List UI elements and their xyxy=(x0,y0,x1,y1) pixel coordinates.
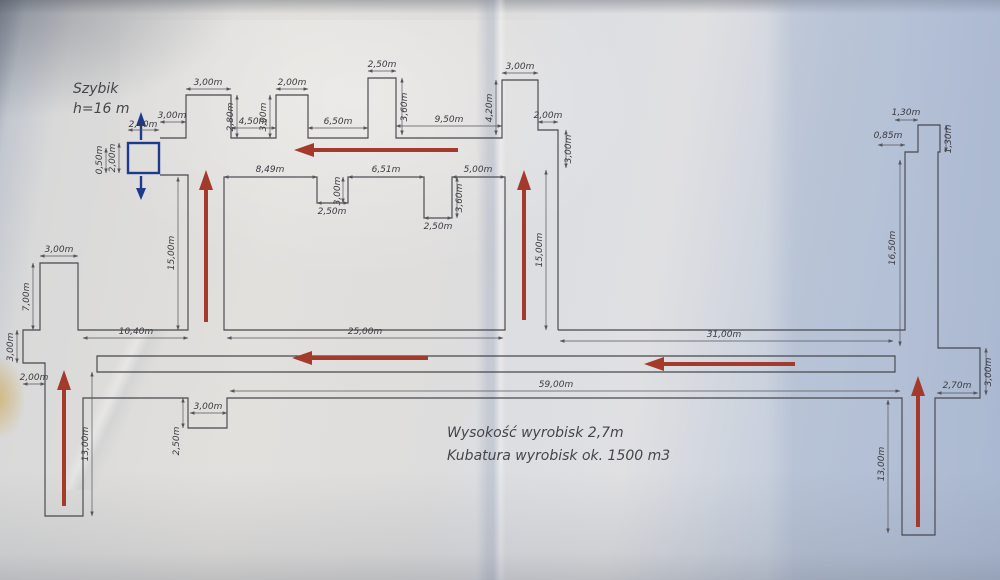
dim-label: 2,50m xyxy=(318,207,347,217)
dim-label: 3,00m xyxy=(158,111,187,121)
dim-label: 3,00m xyxy=(984,357,994,386)
flow-arrow-up-center-corridor-head xyxy=(517,170,531,190)
dim-label: 4,20m xyxy=(485,93,495,122)
dim-label: 6,50m xyxy=(324,117,353,127)
dim-label: 2,00m xyxy=(278,78,307,88)
dim-label: 3,00m xyxy=(194,402,223,412)
dim-label: 2,70m xyxy=(943,381,972,391)
dim-label: 5,00m xyxy=(464,165,493,175)
dim-label: 3,00m xyxy=(259,102,269,131)
note-volume: Kubatura wyrobisk ok. 1500 m3 xyxy=(447,448,670,464)
dim-label: 1,30m xyxy=(944,124,954,153)
dim-label: 3,00m xyxy=(333,176,343,205)
dim-label: 9,50m xyxy=(435,115,464,125)
flow-arrow-up-bottom-right-head xyxy=(911,376,925,396)
dim-label: 7,00m xyxy=(22,282,32,311)
dim-label: 16,50m xyxy=(888,231,898,266)
shaft-height-label: h=16 m xyxy=(73,101,130,117)
tunnel-network xyxy=(23,78,980,535)
dim-label: 1,30m xyxy=(892,108,921,118)
note-height: Wysokość wyrobisk 2,7m xyxy=(447,425,624,441)
dim-label: 0,50m xyxy=(95,145,105,174)
dim-label: 13,00m xyxy=(81,427,91,462)
flow-arrow-left-top-head xyxy=(294,143,314,157)
dim-label: 59,00m xyxy=(539,380,574,390)
airflow-arrows xyxy=(57,143,925,527)
dim-label: 25,00m xyxy=(348,327,383,337)
dim-label: 15,00m xyxy=(535,233,545,268)
dim-label: 3,60m xyxy=(455,183,465,212)
dim-label: 31,00m xyxy=(707,330,742,340)
photographed-mine-plan: 2,40m 2,00m 0,50m 3,00m 3,00m 2,80m 4,50… xyxy=(0,0,1000,580)
mine-plan-drawing: 2,40m 2,00m 0,50m 3,00m 3,00m 2,80m 4,50… xyxy=(0,0,1000,580)
dim-label: 3,00m xyxy=(194,78,223,88)
dim-label: 2,80m xyxy=(226,102,236,131)
flow-arrow-up-bottom-left-head xyxy=(57,370,71,390)
dim-label: 3,00m xyxy=(506,62,535,72)
dim-label: 2,50m xyxy=(172,426,182,455)
tunnel-wall-top xyxy=(160,78,558,330)
dim-label: 10,40m xyxy=(119,327,154,337)
dim-label: 2,00m xyxy=(108,143,118,172)
dim-label: 13,00m xyxy=(877,447,887,482)
flow-arrow-up-left-corridor-head xyxy=(199,170,213,190)
shaft-symbol xyxy=(128,143,159,173)
dim-label: 2,50m xyxy=(368,60,397,70)
dim-label: 2,40m xyxy=(129,120,158,130)
dim-label: 2,50m xyxy=(424,222,453,232)
dim-label: 0,85m xyxy=(874,131,903,141)
dim-label: 3,00m xyxy=(45,245,74,255)
dim-label: 6,51m xyxy=(372,165,401,175)
dim-label: 2,00m xyxy=(534,111,563,121)
shaft-arrow-down-head xyxy=(136,188,146,200)
dim-label: 8,49m xyxy=(256,165,285,175)
dimension-labels: 2,40m 2,00m 0,50m 3,00m 3,00m 2,80m 4,50… xyxy=(6,60,994,481)
shaft-title: Szybik xyxy=(73,81,119,97)
dim-label: 15,00m xyxy=(167,236,177,271)
dim-label: 3,00m xyxy=(6,332,16,361)
flow-arrow-left-mid-east-head xyxy=(644,357,664,371)
dim-label: 3,60m xyxy=(400,92,410,121)
flow-arrow-left-mid-west-head xyxy=(292,351,312,365)
dim-label: 2,00m xyxy=(20,373,49,383)
dim-label: 3,00m xyxy=(564,134,574,163)
